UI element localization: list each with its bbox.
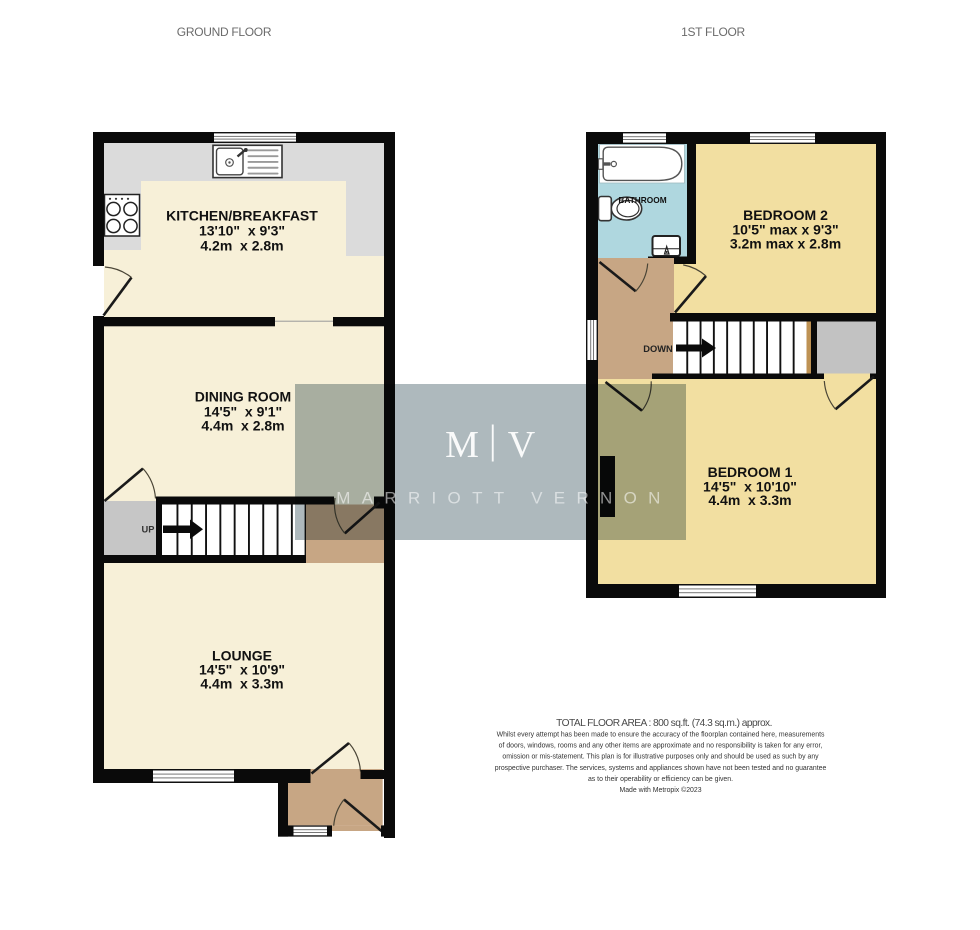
svg-text:4.2m x 2.8m: 4.2m x 2.8m: [200, 238, 283, 254]
svg-text:Made with Metropix ©2023: Made with Metropix ©2023: [619, 786, 701, 794]
svg-text:as to their operability or eff: as to their operability or efficiency ca…: [588, 776, 733, 783]
svg-text:4.4m x 3.3m: 4.4m x 3.3m: [708, 492, 791, 508]
svg-text:prospective purchaser. The ser: prospective purchaser. The services, sys…: [495, 765, 827, 772]
svg-text:DOWN: DOWN: [643, 344, 673, 354]
svg-text:TOTAL FLOOR AREA : 800 sq.ft.: TOTAL FLOOR AREA : 800 sq.ft. (74.3 sq.m…: [556, 718, 772, 729]
svg-text:DINING ROOM: DINING ROOM: [195, 389, 291, 405]
svg-text:KITCHEN/BREAKFAST: KITCHEN/BREAKFAST: [166, 208, 318, 224]
svg-text:UP: UP: [142, 525, 155, 535]
svg-text:omission or mis-statement. Thi: omission or mis-statement. This plan is …: [502, 754, 819, 761]
svg-text:M: M: [445, 424, 479, 466]
svg-text:4.4m x 3.3m: 4.4m x 3.3m: [200, 676, 283, 692]
svg-text:3.2m max x 2.8m: 3.2m max x 2.8m: [730, 236, 841, 252]
svg-text:1ST FLOOR: 1ST FLOOR: [681, 25, 745, 39]
svg-text:of doors, windows, rooms and a: of doors, windows, rooms and any other i…: [499, 743, 823, 750]
svg-text:BATHROOM: BATHROOM: [618, 195, 666, 205]
svg-text:GROUND FLOOR: GROUND FLOOR: [177, 25, 272, 39]
svg-text:Whilst every attempt has been: Whilst every attempt has been made to en…: [497, 732, 825, 739]
svg-text:V: V: [508, 424, 536, 466]
svg-text:4.4m x 2.8m: 4.4m x 2.8m: [201, 418, 284, 434]
svg-text:13'10" x 9'3": 13'10" x 9'3": [199, 223, 285, 239]
svg-text:MARRIOTT VERNON: MARRIOTT VERNON: [336, 489, 671, 508]
